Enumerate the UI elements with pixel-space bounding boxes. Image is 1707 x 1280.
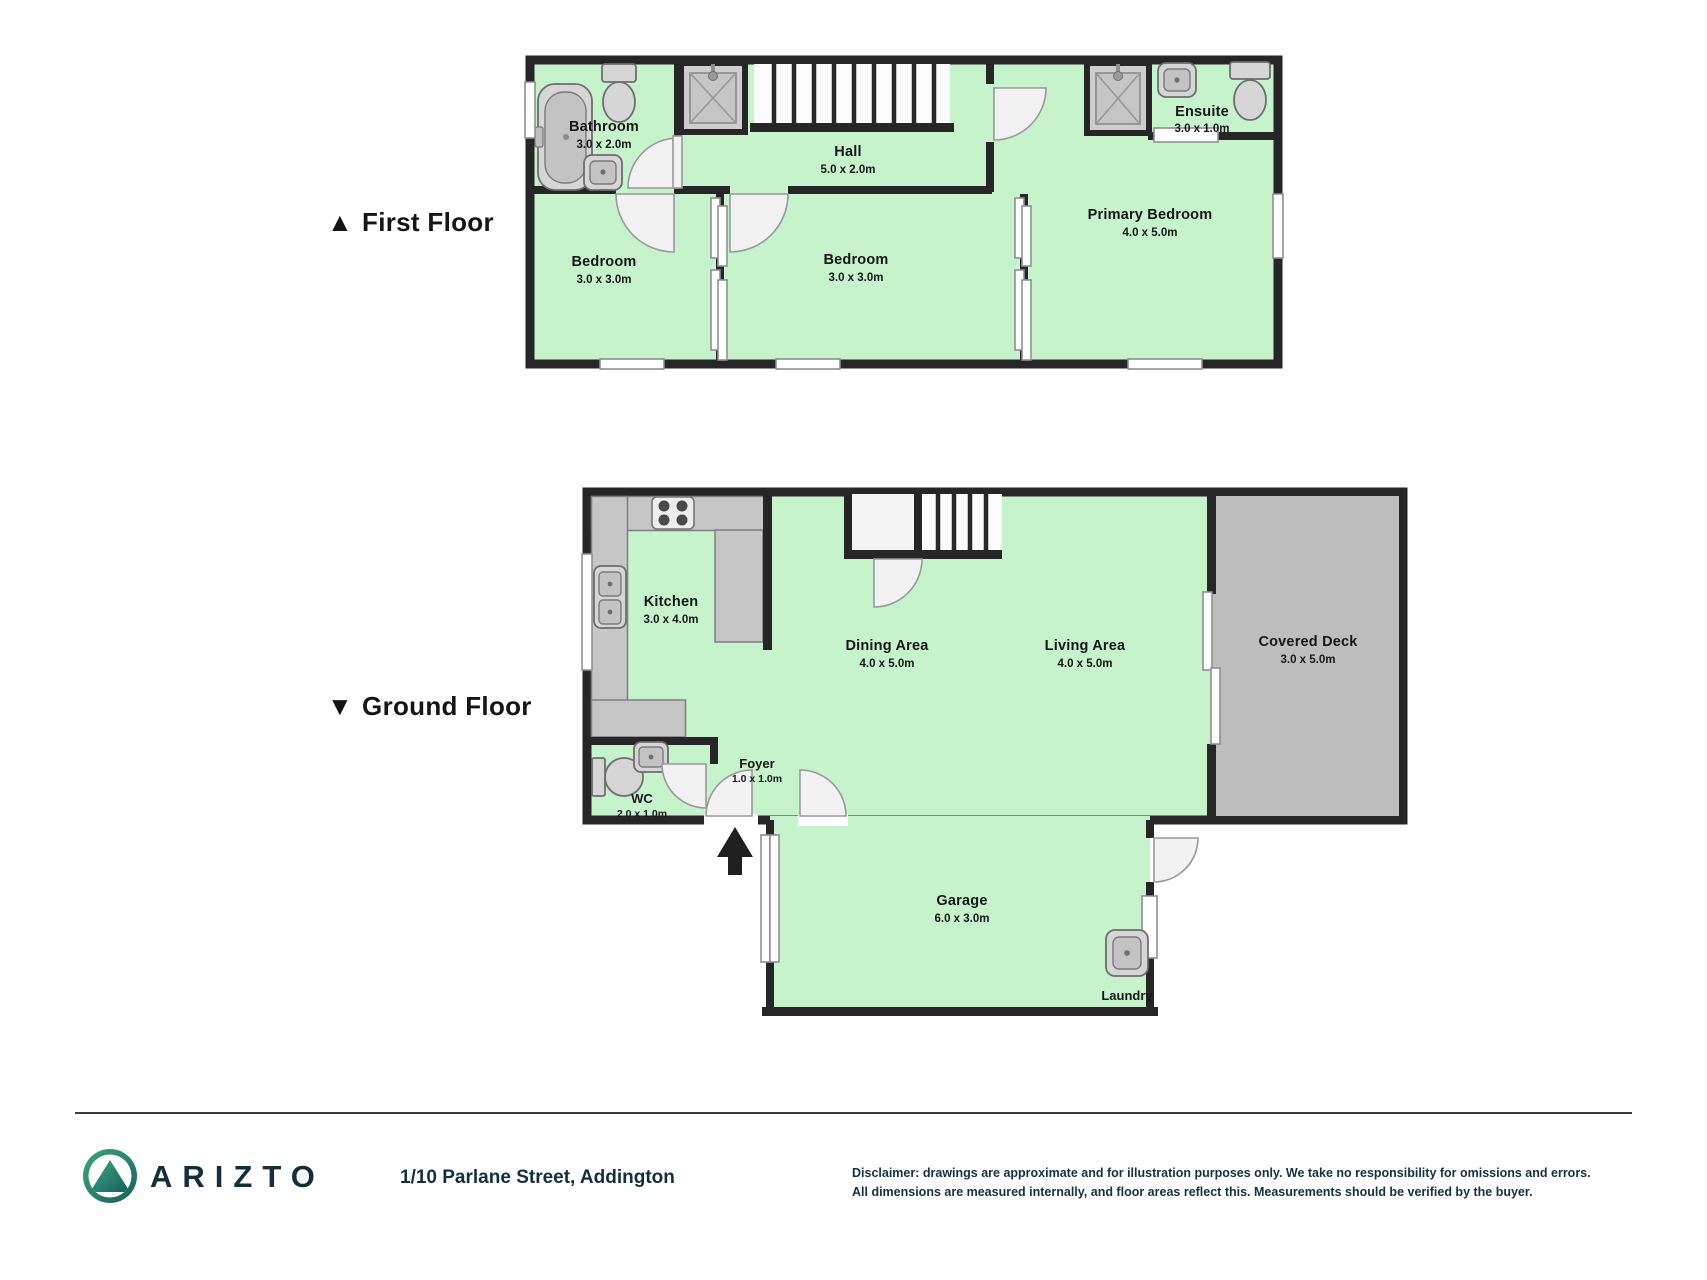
room-name: Bedroom (823, 252, 888, 268)
sink-icon (1158, 63, 1196, 97)
down-triangle-icon: ▼ (327, 691, 353, 721)
brand-name: ARIZTO (150, 1159, 325, 1194)
shower-icon (1084, 60, 1152, 136)
first-floor-plan: Bathroom 3.0 x 2.0m Hall 5.0 x 2.0m Ensu… (525, 60, 1283, 369)
kitchen-sink-icon (594, 566, 626, 628)
first-floor-caption-label: First Floor (362, 207, 494, 237)
room-name: Bedroom (571, 254, 636, 270)
room-dims: 5.0 x 2.0m (821, 164, 876, 176)
window (582, 554, 592, 670)
floor-plan-canvas: Bathroom 3.0 x 2.0m Hall 5.0 x 2.0m Ensu… (0, 0, 1707, 1280)
room-dims: 3.0 x 4.0m (644, 614, 699, 626)
room-dims: 2.0 x 1.0m (617, 808, 667, 820)
toilet-icon (1230, 62, 1270, 120)
sink-icon (584, 155, 622, 190)
room-name: Living Area (1045, 638, 1126, 654)
shower-icon (678, 60, 748, 135)
disclaimer-line-2: All dimensions are measured internally, … (852, 1185, 1533, 1199)
room-label-foyer: Foyer 1.0 x 1.0m (732, 756, 782, 785)
room-dims: 4.0 x 5.0m (1123, 227, 1178, 239)
room-name: Covered Deck (1258, 634, 1358, 650)
room-name: Kitchen (644, 594, 699, 610)
up-triangle-icon: ▲ (327, 207, 353, 237)
laundry-tub-icon (1106, 930, 1148, 976)
door-swing (1154, 838, 1198, 882)
room-dims: 1.0 x 1.0m (732, 773, 782, 785)
ground-floor-plan: Kitchen 3.0 x 4.0m Dining Area 4.0 x 5.0… (582, 492, 1403, 1016)
toilet-icon (602, 64, 636, 122)
ground-floor-caption-label: Ground Floor (362, 691, 532, 721)
room-name: Bathroom (569, 119, 639, 135)
room-name: Ensuite (1175, 104, 1229, 120)
room-name: WC (631, 791, 653, 806)
room-name: Primary Bedroom (1088, 207, 1213, 223)
room-dims: 6.0 x 3.0m (935, 913, 990, 925)
room-name: Foyer (739, 756, 774, 771)
room-label-laundry: Laundry (1101, 988, 1153, 1003)
room-label-ensuite: Ensuite 3.0 x 1.0m (1175, 104, 1230, 135)
room-dims: 3.0 x 3.0m (829, 272, 884, 284)
room-dims: 3.0 x 3.0m (577, 274, 632, 286)
room-name: Garage (936, 893, 987, 909)
room-dims: 4.0 x 5.0m (860, 658, 915, 670)
room-name: Laundry (1101, 988, 1153, 1003)
room-dims: 3.0 x 2.0m (577, 139, 632, 151)
room-dims: 3.0 x 1.0m (1175, 123, 1230, 135)
room-name: Dining Area (845, 638, 929, 654)
floor-plan-page: Bathroom 3.0 x 2.0m Hall 5.0 x 2.0m Ensu… (0, 0, 1707, 1280)
stove-icon (652, 497, 694, 529)
room-name: Hall (834, 144, 861, 160)
footer: ARIZTO 1/10 Parlane Street, Addington Di… (75, 1113, 1632, 1203)
stairs-first-floor (754, 64, 950, 123)
ground-floor-caption: ▼Ground Floor (327, 691, 532, 721)
arizto-logo-icon (83, 1149, 137, 1203)
entry-arrow-icon (717, 827, 753, 875)
garage-door (761, 835, 779, 962)
room-dims: 3.0 x 5.0m (1281, 654, 1336, 666)
disclaimer-line-1: Disclaimer: drawings are approximate and… (852, 1166, 1591, 1180)
property-address: 1/10 Parlane Street, Addington (400, 1167, 675, 1188)
first-floor-caption: ▲First Floor (327, 207, 494, 237)
room-dims: 4.0 x 5.0m (1058, 658, 1113, 670)
